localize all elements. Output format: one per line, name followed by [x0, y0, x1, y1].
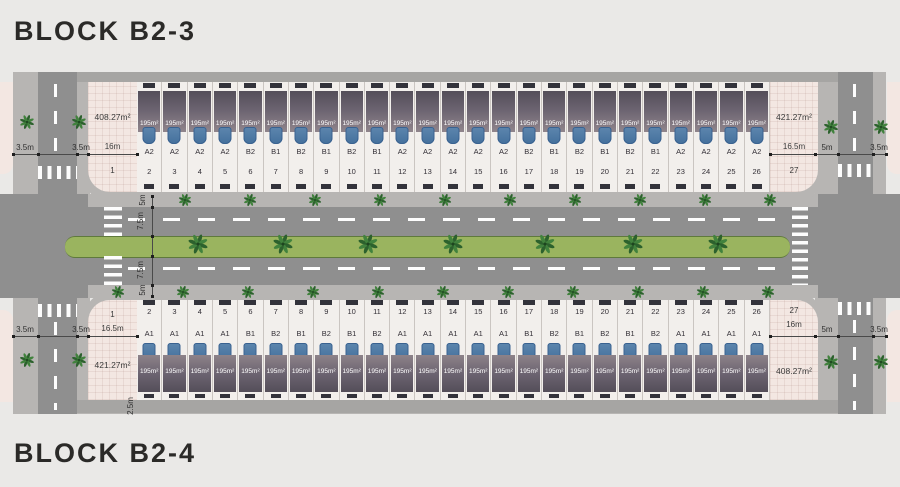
house-roof: 195m²: [695, 91, 717, 132]
carport-icon: [446, 127, 459, 144]
palm-tree-icon: [503, 193, 517, 207]
house-roof: 195m²: [720, 91, 742, 132]
unit-type-label: B1: [618, 329, 642, 338]
unit-type-label: B1: [264, 147, 288, 156]
lot-number-label: 7: [264, 167, 288, 176]
house-roof: 195m²: [315, 355, 337, 392]
lane-marking-bottom: [128, 267, 788, 270]
unit-type-label: A1: [719, 329, 743, 338]
house-roof: 195m²: [163, 91, 185, 132]
lot-b2-4-8: 8B1195m²: [289, 300, 314, 400]
parking-pad-icon: [549, 184, 559, 189]
lot-area-label: 195m²: [642, 368, 668, 375]
block-b2-3-title: BLOCK B2-3: [14, 16, 196, 47]
parking-pad-icon: [296, 184, 306, 189]
lot-b2-3-25: 195m²A225: [719, 82, 744, 192]
parking-pad-icon: [169, 184, 179, 189]
parking-pad-icon: [752, 394, 762, 398]
lot-b2-4-15: 15A1195m²: [466, 300, 491, 400]
parking-pad-icon: [321, 184, 331, 189]
parking-pad-icon: [650, 394, 660, 398]
lot-b2-3-21: 195m²B221: [618, 82, 643, 192]
lot-b2-3-9: 195m²B19: [314, 82, 339, 192]
dimension-label: 5m: [813, 143, 841, 153]
palm-tree-icon: [534, 233, 556, 255]
lot-b2-3-23: 195m²A223: [669, 82, 694, 192]
carport-icon: [624, 127, 637, 144]
lot-b2-3-19: 195m²B219: [567, 82, 592, 192]
unit-type-label: A2: [745, 147, 769, 156]
house-roof: 195m²: [492, 355, 514, 392]
carport-icon: [725, 127, 738, 144]
unit-type-label: B1: [365, 147, 389, 156]
parking-pad-icon: [169, 394, 179, 398]
parking-pad-icon: [624, 300, 636, 305]
palm-tree-icon: [436, 285, 450, 299]
lot-area-label: 195m²: [718, 120, 744, 127]
dimension-dot: [151, 255, 154, 258]
edge-lot-bottom-left: [0, 310, 13, 402]
median-strip: [65, 236, 790, 258]
lot-number-label: 1: [88, 166, 137, 175]
carport-icon: [370, 127, 383, 144]
lot-width-label: 16m: [770, 320, 818, 329]
dimension-line: [13, 336, 137, 337]
lot-number-label: 12: [390, 307, 414, 316]
parking-pad-icon: [245, 184, 255, 189]
unit-type-label: B1: [340, 329, 364, 338]
lot-area-label: 195m²: [136, 368, 162, 375]
lot-number-label: 16: [491, 307, 515, 316]
lot-area-label: 408.27m²: [88, 112, 137, 122]
parking-pad-icon: [371, 300, 383, 305]
parking-pad-icon: [726, 394, 736, 398]
lot-number-label: 26: [745, 307, 769, 316]
unit-type-label: B2: [517, 147, 541, 156]
lot-b2-4-27: 27 16m 408.27m²: [770, 300, 818, 400]
house-roof: 195m²: [644, 91, 666, 132]
lot-b2-3-20: 195m²B120: [593, 82, 618, 192]
parking-pad-icon: [219, 300, 231, 305]
dimension-label: 3.5m: [865, 143, 893, 153]
lot-width-label: 16m: [88, 142, 137, 151]
lot-area-label: 195m²: [288, 120, 314, 127]
lot-b2-3-2: 195m²A22: [137, 82, 162, 192]
house-roof: 195m²: [594, 91, 616, 132]
lot-number-label: 14: [441, 307, 465, 316]
parking-pad-icon: [423, 184, 433, 189]
house-roof: 195m²: [366, 355, 388, 392]
lot-b2-3-16: 195m²A216: [491, 82, 516, 192]
house-roof: 195m²: [670, 355, 692, 392]
parking-pad-icon: [347, 184, 357, 189]
palm-tree-icon: [761, 285, 775, 299]
lot-b2-4-19: 19B1195m²: [567, 300, 592, 400]
parking-pad-icon: [397, 184, 407, 189]
lot-b2-4-13: 13A1195m²: [415, 300, 440, 400]
palm-tree-icon: [696, 285, 710, 299]
dimension-line: [770, 154, 886, 155]
dimension-dot: [136, 335, 139, 338]
house-roof: 195m²: [138, 91, 160, 132]
lot-area-label: 195m²: [541, 368, 567, 375]
house-roof: 195m²: [746, 91, 768, 132]
parking-pad-icon: [573, 300, 585, 305]
house-roof: 195m²: [442, 355, 464, 392]
lots-row-b2-4: 2A1195m²3A1195m²4A1195m²5A1195m²6B1195m²…: [137, 300, 770, 400]
carport-icon: [269, 127, 282, 144]
parking-pad-icon: [548, 83, 560, 88]
unit-type-label: A1: [415, 329, 439, 338]
house-roof: 195m²: [391, 91, 413, 132]
parking-pad-icon: [725, 83, 737, 88]
parking-pad-icon: [244, 83, 256, 88]
lot-number-label: 10: [340, 307, 364, 316]
lot-area-label: 195m²: [237, 120, 263, 127]
house-roof: 195m²: [568, 91, 590, 132]
palm-tree-icon: [308, 193, 322, 207]
parking-pad-icon: [574, 394, 584, 398]
lot-number-label: 5: [213, 167, 237, 176]
lot-b2-4-6: 6B1195m²: [238, 300, 263, 400]
lot-number-label: 23: [669, 307, 693, 316]
lane-marking-right-top: [853, 84, 856, 160]
dimension-label: 3.5m: [67, 143, 95, 153]
lot-number-label: 21: [618, 167, 642, 176]
parking-pad-icon: [320, 300, 332, 305]
lot-area-label: 195m²: [490, 368, 516, 375]
house-roof: 195m²: [239, 91, 261, 132]
unit-type-label: A2: [491, 147, 515, 156]
lots-row-b2-3: 195m²A22195m²A23195m²A24195m²A25195m²B26…: [137, 82, 770, 192]
parking-pad-icon: [523, 83, 535, 88]
lot-b2-3-11: 195m²B111: [365, 82, 390, 192]
lot-area-label: 195m²: [161, 120, 187, 127]
palm-tree-icon: [176, 285, 190, 299]
lot-number-label: 1: [88, 310, 137, 319]
parking-pad-icon: [194, 300, 206, 305]
house-roof: 195m²: [492, 91, 514, 132]
lot-b2-3-10: 195m²B210: [340, 82, 365, 192]
lane-marking-top: [128, 218, 788, 221]
lot-number-label: 16: [491, 167, 515, 176]
lot-b2-3-12: 195m²A212: [390, 82, 415, 192]
house-roof: 195m²: [518, 91, 540, 132]
unit-type-label: A1: [188, 329, 212, 338]
lot-number-label: 13: [415, 307, 439, 316]
parking-pad-icon: [600, 184, 610, 189]
lot-area-label: 195m²: [389, 368, 415, 375]
lot-b2-3-1: 408.27m² 16m 1: [88, 82, 137, 192]
parking-pad-icon: [143, 83, 155, 88]
lot-area-label: 195m²: [490, 120, 516, 127]
lot-area-label: 195m²: [313, 368, 339, 375]
dimension-dot: [872, 153, 875, 156]
unit-type-label: A1: [137, 329, 161, 338]
unit-type-label: B1: [567, 329, 591, 338]
lot-number-label: 21: [618, 307, 642, 316]
parking-pad-icon: [347, 394, 357, 398]
house-roof: 195m²: [644, 355, 666, 392]
house-roof: 195m²: [189, 355, 211, 392]
parking-pad-icon: [372, 184, 382, 189]
lane-marking-left-top: [54, 84, 57, 162]
unit-type-label: B1: [238, 329, 262, 338]
unit-type-label: B1: [517, 329, 541, 338]
lot-b2-4-1: 1 16.5m 421.27m²: [88, 300, 137, 400]
lot-area-label: 195m²: [668, 120, 694, 127]
palm-tree-icon: [243, 193, 257, 207]
lot-area-label: 195m²: [744, 120, 770, 127]
lot-b2-4-12: 12A1195m²: [390, 300, 415, 400]
palm-tree-icon: [873, 354, 889, 370]
lot-number-label: 15: [466, 307, 490, 316]
parking-pad-icon: [624, 83, 636, 88]
lot-b2-4-17: 17B1195m²: [517, 300, 542, 400]
lot-area-label: 195m²: [187, 120, 213, 127]
unit-type-label: B1: [593, 147, 617, 156]
unit-type-label: B2: [289, 147, 313, 156]
carport-icon: [598, 127, 611, 144]
house-roof: 195m²: [265, 91, 287, 132]
dimension-dot: [885, 335, 888, 338]
unit-type-label: A2: [137, 147, 161, 156]
house-roof: 195m²: [695, 355, 717, 392]
lot-number-label: 7: [264, 307, 288, 316]
lot-number-label: 9: [314, 167, 338, 176]
house-roof: 195m²: [416, 91, 438, 132]
dimension-dot: [12, 335, 15, 338]
house-roof: 195m²: [214, 355, 236, 392]
house-roof: 195m²: [467, 355, 489, 392]
lot-number-label: 11: [365, 167, 389, 176]
lot-width-label: 16.5m: [770, 142, 818, 151]
parking-pad-icon: [650, 184, 660, 189]
parking-pad-icon: [346, 300, 358, 305]
lot-area-label: 195m²: [288, 368, 314, 375]
parking-pad-icon: [396, 83, 408, 88]
parking-pad-icon: [271, 184, 281, 189]
unit-type-label: A1: [213, 329, 237, 338]
site-plan: 408.27m² 16m 1 421.27m² 16.5m 27 1 16.5m…: [0, 62, 900, 430]
unit-type-label: A1: [694, 329, 718, 338]
carport-icon: [168, 127, 181, 144]
house-roof: 195m²: [366, 91, 388, 132]
lot-b2-3-22: 195m²B122: [643, 82, 668, 192]
parking-pad-icon: [447, 83, 459, 88]
lot-b2-4-20: 20B2195m²: [593, 300, 618, 400]
parking-pad-icon: [473, 394, 483, 398]
parking-pad-icon: [751, 300, 763, 305]
house-roof: 195m²: [543, 91, 565, 132]
dimension-dot: [837, 335, 840, 338]
lot-area-label: 195m²: [566, 368, 592, 375]
house-roof: 195m²: [568, 355, 590, 392]
parking-pad-icon: [523, 300, 535, 305]
parking-pad-icon: [649, 300, 661, 305]
lot-area-label: 195m²: [414, 368, 440, 375]
parking-pad-icon: [245, 394, 255, 398]
parking-pad-icon: [244, 300, 256, 305]
parking-pad-icon: [498, 300, 510, 305]
lot-number-label: 17: [517, 167, 541, 176]
lane-marking-right-bottom: [853, 320, 856, 410]
lot-number-label: 9: [314, 307, 338, 316]
dimension-line: [152, 196, 153, 296]
dimension-label: 3.5m: [11, 325, 39, 335]
unit-type-label: A2: [162, 147, 186, 156]
house-roof: 195m²: [214, 91, 236, 132]
carport-icon: [750, 127, 763, 144]
parking-pad-icon: [700, 83, 712, 88]
parking-pad-icon: [676, 394, 686, 398]
house-roof: 195m²: [290, 91, 312, 132]
unit-type-label: B2: [264, 329, 288, 338]
carport-icon: [193, 127, 206, 144]
parking-pad-icon: [498, 83, 510, 88]
parking-pad-icon: [447, 300, 459, 305]
parking-pad-icon: [726, 184, 736, 189]
crosswalk-right-road-upper: [838, 164, 873, 177]
lot-area-label: 195m²: [440, 368, 466, 375]
lot-b2-4-26: 26A1195m²: [745, 300, 770, 400]
lot-b2-4-10: 10B1195m²: [340, 300, 365, 400]
lot-number-label: 12: [390, 167, 414, 176]
parking-pad-icon: [751, 83, 763, 88]
unit-type-label: A1: [162, 329, 186, 338]
lot-b2-4-23: 23A1195m²: [669, 300, 694, 400]
lot-number-label: 18: [542, 167, 566, 176]
dimension-dot: [769, 153, 772, 156]
dimension-dot: [814, 335, 817, 338]
lot-b2-4-18: 18B2195m²: [542, 300, 567, 400]
dimension-label: 5m: [813, 325, 841, 335]
carport-icon: [573, 127, 586, 144]
house-roof: 195m²: [391, 355, 413, 392]
palm-tree-icon: [187, 233, 209, 255]
parking-pad-icon: [649, 83, 661, 88]
house-roof: 195m²: [594, 355, 616, 392]
dimension-dot: [37, 153, 40, 156]
unit-type-label: B2: [618, 147, 642, 156]
carport-icon: [649, 127, 662, 144]
parking-pad-icon: [499, 394, 509, 398]
palm-tree-icon: [707, 233, 729, 255]
lot-area-label: 195m²: [592, 120, 618, 127]
lot-b2-4-21: 21B1195m²: [618, 300, 643, 400]
house-roof: 195m²: [163, 355, 185, 392]
lot-number-label: 6: [238, 167, 262, 176]
lot-b2-3-15: 195m²A215: [466, 82, 491, 192]
carport-icon: [472, 127, 485, 144]
parking-pad-icon: [725, 300, 737, 305]
palm-tree-icon: [373, 193, 387, 207]
lot-number-label: 22: [643, 167, 667, 176]
parking-pad-icon: [270, 300, 282, 305]
carport-icon: [396, 127, 409, 144]
crosswalk-left-road-upper: [38, 166, 77, 179]
parking-pad-icon: [195, 394, 205, 398]
lot-area-label: 195m²: [364, 120, 390, 127]
lot-number-label: 22: [643, 307, 667, 316]
palm-tree-icon: [241, 285, 255, 299]
parking-pad-icon: [700, 300, 712, 305]
palm-tree-icon: [501, 285, 515, 299]
lot-area-label: 195m²: [617, 120, 643, 127]
house-roof: 195m²: [416, 355, 438, 392]
dimension-dot: [76, 153, 79, 156]
dimension-line: [13, 154, 137, 155]
lot-area-label: 421.27m²: [770, 112, 818, 122]
dimension-dot: [87, 335, 90, 338]
lot-area-label: 195m²: [414, 120, 440, 127]
dimension-dot: [151, 206, 154, 209]
lot-area-label: 195m²: [718, 368, 744, 375]
lot-number-label: 11: [365, 307, 389, 316]
parking-pad-icon: [168, 300, 180, 305]
parking-pad-icon: [625, 184, 635, 189]
palm-tree-icon: [823, 354, 839, 370]
lot-area-label: 195m²: [642, 120, 668, 127]
block-b2-4-title: BLOCK B2-4: [14, 438, 196, 469]
parking-pad-icon: [676, 184, 686, 189]
lot-number-label: 2: [137, 307, 161, 316]
carport-icon: [244, 127, 257, 144]
parking-pad-icon: [321, 394, 331, 398]
dimension-dot: [769, 335, 772, 338]
lot-b2-4-24: 24A1195m²: [694, 300, 719, 400]
unit-type-label: A2: [719, 147, 743, 156]
house-roof: 195m²: [341, 355, 363, 392]
parking-pad-icon: [295, 300, 307, 305]
unit-type-label: B2: [542, 329, 566, 338]
parking-pad-icon: [675, 83, 687, 88]
lot-area-label: 195m²: [516, 120, 542, 127]
lot-area-label: 195m²: [339, 368, 365, 375]
lot-area-label: 195m²: [744, 368, 770, 375]
parking-pad-icon: [423, 394, 433, 398]
crosswalk-left-road-lower: [38, 304, 77, 317]
lot-number-label: 23: [669, 167, 693, 176]
lot-b2-3-17: 195m²B217: [517, 82, 542, 192]
lot-b2-4-3: 3A1195m²: [162, 300, 187, 400]
crosswalk-mid-right: [792, 207, 808, 285]
parking-pad-icon: [219, 83, 231, 88]
dimension-dot: [87, 153, 90, 156]
dimension-dot: [885, 153, 888, 156]
palm-tree-icon: [178, 193, 192, 207]
lot-number-label: 6: [238, 307, 262, 316]
house-roof: 195m²: [543, 355, 565, 392]
lot-number-label: 8: [289, 167, 313, 176]
parking-pad-icon: [372, 394, 382, 398]
house-roof: 195m²: [467, 91, 489, 132]
lot-area-label: 195m²: [212, 120, 238, 127]
lot-number-label: 27: [770, 306, 818, 315]
carport-icon: [497, 127, 510, 144]
house-roof: 195m²: [239, 355, 261, 392]
palm-tree-icon: [19, 114, 35, 130]
house-roof: 195m²: [341, 91, 363, 132]
palm-tree-icon: [357, 233, 379, 255]
parking-pad-icon: [346, 83, 358, 88]
palm-tree-icon: [566, 285, 580, 299]
parking-pad-icon: [472, 83, 484, 88]
lot-b2-4-2: 2A1195m²: [137, 300, 162, 400]
unit-type-label: B2: [340, 147, 364, 156]
palm-tree-icon: [272, 233, 294, 255]
parking-pad-icon: [752, 184, 762, 189]
